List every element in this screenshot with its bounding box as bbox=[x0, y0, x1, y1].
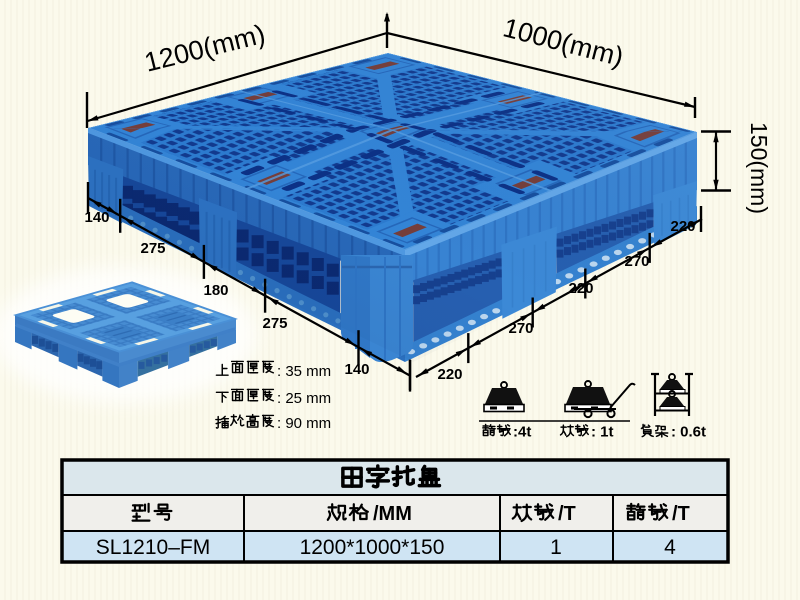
svg-text:275: 275 bbox=[262, 315, 287, 332]
svg-text::4t: :4t bbox=[513, 424, 531, 441]
svg-text:1200*1000*150: 1200*1000*150 bbox=[300, 536, 445, 559]
svg-text:270: 270 bbox=[624, 253, 649, 270]
svg-text:220: 220 bbox=[670, 218, 695, 235]
svg-text:/T: /T bbox=[558, 503, 576, 525]
svg-text:220: 220 bbox=[437, 366, 462, 383]
svg-text:1: 1 bbox=[550, 536, 562, 559]
svg-text:: 25 mm: : 25 mm bbox=[277, 390, 331, 407]
svg-text:140: 140 bbox=[84, 209, 109, 226]
svg-text:180: 180 bbox=[203, 282, 228, 299]
svg-text:140: 140 bbox=[344, 361, 369, 378]
svg-text:4: 4 bbox=[664, 536, 676, 559]
svg-text:150(mm): 150(mm) bbox=[746, 122, 772, 214]
svg-text:: 90 mm: : 90 mm bbox=[277, 415, 331, 432]
svg-text:270: 270 bbox=[508, 320, 533, 337]
svg-text:SL1210–FM: SL1210–FM bbox=[96, 536, 210, 559]
svg-text:/T: /T bbox=[672, 503, 690, 525]
svg-text:: 35 mm: : 35 mm bbox=[277, 363, 331, 380]
svg-text:275: 275 bbox=[140, 240, 165, 257]
svg-text:: 1t: : 1t bbox=[591, 424, 614, 441]
svg-text:/MM: /MM bbox=[373, 503, 412, 525]
svg-text:: 0.6t: : 0.6t bbox=[671, 424, 706, 441]
svg-text:220: 220 bbox=[568, 280, 593, 297]
